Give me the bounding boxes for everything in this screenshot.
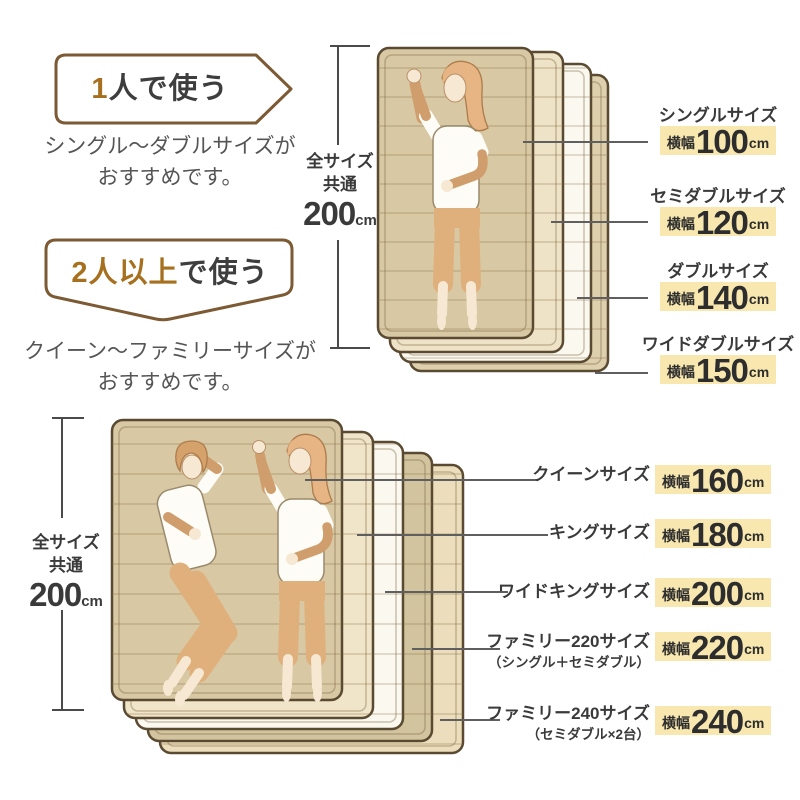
measure-tick-bottom [330,347,370,349]
size-name: クイーンサイズ [470,464,650,486]
size-subname: （セミダブル×2台） [470,725,650,745]
width-unit: cm [749,213,769,236]
leader-line-double [577,297,648,299]
width-value: 200 [691,580,743,607]
width-unit: cm [744,712,764,735]
size-label-single: シングルサイズ 横幅100cm [640,101,796,155]
width-value: 160 [691,467,743,494]
size-value-badge-family220: 横幅220cm [655,632,771,661]
size-name: キングサイズ [470,522,650,544]
single-recommendation-text: シングル〜ダブルサイズが おすすめです。 [25,131,315,193]
size-value-badge-wide-king: 横幅200cm [655,578,771,607]
size-label-semi-double: セミダブルサイズ 横幅120cm [640,182,796,236]
width-value: 180 [691,521,743,548]
measure-label-double: 全サイズ 共通 200cm [23,531,109,620]
double-mattress-stack [100,415,470,760]
width-unit: cm [744,638,764,661]
size-name: ファミリー220サイズ [470,631,650,653]
leader-line-semi-double [551,221,648,223]
width-value: 120 [696,209,748,236]
size-value-badge-family240: 横幅240cm [655,706,771,735]
measure-length-number: 200 [29,576,81,613]
size-label-double: ダブルサイズ 横幅140cm [640,257,796,311]
width-unit: cm [749,288,769,311]
double-recommendation-line1: クイーン〜ファミリーサイズが [20,336,320,367]
measure-all-sizes: 全サイズ [23,531,109,554]
badge-rest-text: 人で使う [109,73,229,105]
infographic-canvas: 1人で使う シングル〜ダブルサイズが おすすめです。 全サイズ 共通 200cm [0,0,800,800]
size-name-king: キングサイズ [470,522,650,544]
width-unit: cm [744,471,764,494]
measure-line-lower-2 [61,610,63,711]
badge-rest-text: で使う [179,257,269,289]
double-recommendation-text: クイーン〜ファミリーサイズが おすすめです。 [20,336,320,398]
width-prefix: 横幅 [662,525,690,548]
size-value-badge-king: 横幅180cm [655,519,771,548]
width-value: 150 [696,357,748,384]
size-name-queen: クイーンサイズ [470,464,650,486]
badge-two-persons-label: 2人以上で使う [47,256,293,290]
width-value: 220 [691,634,743,661]
width-prefix: 横幅 [662,638,690,661]
size-value-badge: 横幅140cm [660,282,776,311]
size-value-badge: 横幅100cm [660,126,776,155]
badge-one-person-label: 1人で使う [55,72,265,106]
measure-line-upper-2 [61,417,63,518]
size-subname: （シングル＋セミダブル） [470,653,650,673]
size-name-wide-king: ワイドキングサイズ [470,581,650,603]
single-mattress-stack [370,40,620,380]
width-unit: cm [744,584,764,607]
width-unit: cm [744,525,764,548]
single-recommendation-line1: シングル〜ダブルサイズが [25,131,315,162]
size-name-family220: ファミリー220サイズ （シングル＋セミダブル） [470,631,650,673]
size-value-badge: 横幅120cm [660,207,776,236]
width-prefix: 横幅 [667,132,695,155]
badge-accent-text: 1 [91,73,108,105]
measure-tick-top [330,45,370,47]
size-name-family240: ファミリー240サイズ （セミダブル×2台） [470,703,650,745]
measure-length-number: 200 [303,195,355,232]
size-name: ワイドキングサイズ [470,581,650,603]
double-recommendation-line2: おすすめです。 [20,367,320,398]
width-value: 240 [691,708,743,735]
width-prefix: 横幅 [667,288,695,311]
single-recommendation-line2: おすすめです。 [25,162,315,193]
size-name: ファミリー240サイズ [470,703,650,725]
size-value-badge: 横幅150cm [660,355,776,384]
measure-line-lower [337,240,339,349]
size-value-badge-queen: 横幅160cm [655,465,771,494]
width-prefix: 横幅 [667,213,695,236]
width-prefix: 横幅 [662,712,690,735]
width-unit: cm [749,361,769,384]
width-value: 140 [696,284,748,311]
width-prefix: 横幅 [662,471,690,494]
width-prefix: 横幅 [667,361,695,384]
measure-common: 共通 [23,554,109,577]
width-value: 100 [696,128,748,155]
measure-tick-top-2 [52,417,84,419]
measure-tick-bottom-2 [52,709,84,711]
leader-line-single [523,141,648,143]
size-label-wide-double: ワイドダブルサイズ 横幅150cm [640,330,796,384]
width-unit: cm [749,132,769,155]
badge-accent-text: 2人以上 [71,257,178,289]
width-prefix: 横幅 [662,584,690,607]
measure-line-upper [337,45,339,145]
